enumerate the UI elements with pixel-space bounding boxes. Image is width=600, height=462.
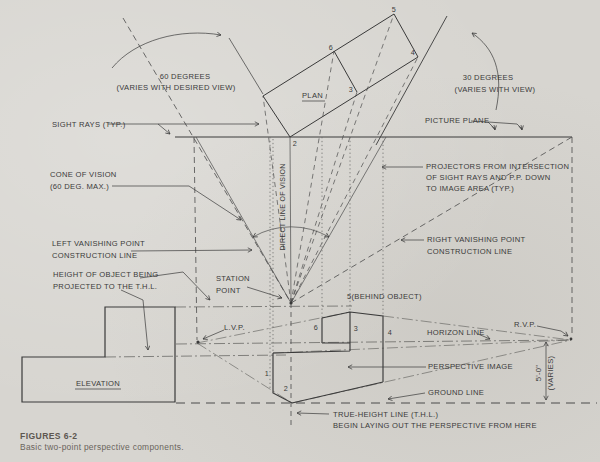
left-vp-drop-line [194,137,197,340]
height-label-2: PROJECTED TO THE T.H.L. [53,282,157,291]
plan-point-3: 3 [349,85,353,94]
station-point-leader [247,287,282,298]
image-point-4: 4 [388,328,392,337]
elevation-label: ELEVATION [76,379,120,388]
projectors-label-3: TO IMAGE AREA (TYP.) [426,184,514,193]
plan-outline [263,14,418,137]
deg60-label-2: (VARIES WITH DESIRED VIEW) [116,83,235,92]
sight-rays-leader2 [158,124,170,134]
height-leader2 [121,290,148,350]
lvp-leader [203,330,224,339]
figure-caption: FIGURES 6-2 Basic two-point perspective … [20,431,184,453]
deg60-label-1: 60 DEGREES [160,72,211,81]
station-point-dot [289,301,292,304]
plan-label: PLAN [302,91,323,100]
direction-of-vision-line [290,137,291,303]
point-numbers: 5 6 3 4 2 6 3 4 1 2 [265,5,415,393]
perspective-diagram: 60 DEGREES (VARIES WITH DESIRED VIEW) 30… [0,0,600,462]
lvp-dot [196,340,199,343]
picture-plane-arrow1 [494,125,495,130]
rvp-label: R.V.P. [514,320,536,329]
right-angle-line [376,16,447,145]
rvp-leader [537,326,568,336]
thl-label-1: TRUE-HEIGHT LINE (T.H.L.) [333,410,438,419]
cone-label-2: (60 DEG. MAX.) [50,182,109,191]
rvp-construction-label-2: CONSTRUCTION LINE [427,247,512,256]
pp-point-2: 2 [293,139,297,148]
deg30-label-1: 30 DEGREES [463,73,514,82]
sight-ray-lines [263,14,418,303]
lvp-label: L.V.P. [224,323,245,332]
rvp-construction-label-1: RIGHT VANISHING POINT [427,235,525,244]
image-point-1: 1 [265,369,269,378]
deg30-label-2: (VARIES WITH VIEW) [455,85,536,94]
dimension-height-label: 5'-0" [534,365,543,382]
diagram-page: 60 DEGREES (VARIES WITH DESIRED VIEW) 30… [0,0,600,462]
perspective-image-shape [273,312,383,403]
station-label-1: STATION [216,274,250,283]
ground-line-label: GROUND LINE [428,388,484,397]
image-point-3: 3 [354,324,358,333]
plan-view [263,14,418,137]
lvp-construction-label-1: LEFT VANISHING POINT [52,239,145,248]
plan-point-5: 5 [392,5,396,14]
image-point-6: 6 [314,323,318,332]
cone-label-1: CONE OF VISION [50,170,117,179]
cone-leader [112,186,241,220]
left-angle-line [123,18,291,303]
sight-rays-label: SIGHT RAYS (TYP.) [52,120,126,129]
direction-of-vision-label: DIRECT LINE OF VISION [279,163,286,250]
picture-plane-arrow2 [521,125,522,130]
perspective-image-outline [273,312,383,403]
thl-leader [297,413,329,414]
figure-caption-subtitle: Basic two-point perspective components. [20,442,184,453]
behind-object-label: 5(BEHIND OBJECT) [347,292,422,301]
cone-of-vision-arc [253,227,329,237]
rvp-dot [570,338,573,341]
projectors-label-2: OF SIGHT RAYS AND P.P. DOWN [426,173,550,182]
image-point-2: 2 [284,384,288,393]
plan-step-line [334,51,357,92]
picture-plane-label: PICTURE PLANE [425,116,489,125]
deg30-arc-arrow [472,33,499,110]
figure-caption-title: FIGURES 6-2 [20,431,184,442]
dimension-varies-label: (VARIES) [546,355,555,390]
lvp-construction-leader [131,250,252,251]
station-label-2: POINT [216,286,241,295]
perspective-image-label: PERSPECTIVE IMAGE [428,362,513,371]
projectors-label-1: PROJECTORS FROM INTERSECTION [426,162,569,171]
ground-line-leader [388,393,425,399]
lvp-construction-label-2: CONSTRUCTION LINE [52,251,137,260]
plan-point-6: 6 [329,43,333,52]
horizon-line [176,340,571,344]
thl-label-2: BEGIN LAYING OUT THE PERSPECTIVE FROM HE… [333,421,537,430]
horizon-line-label: HORIZON LINE [427,328,485,337]
plan-point-4: 4 [411,48,415,57]
height-label-1: HEIGHT OF OBJECT BEING [53,270,158,279]
deg60-arc-arrow [112,33,221,68]
